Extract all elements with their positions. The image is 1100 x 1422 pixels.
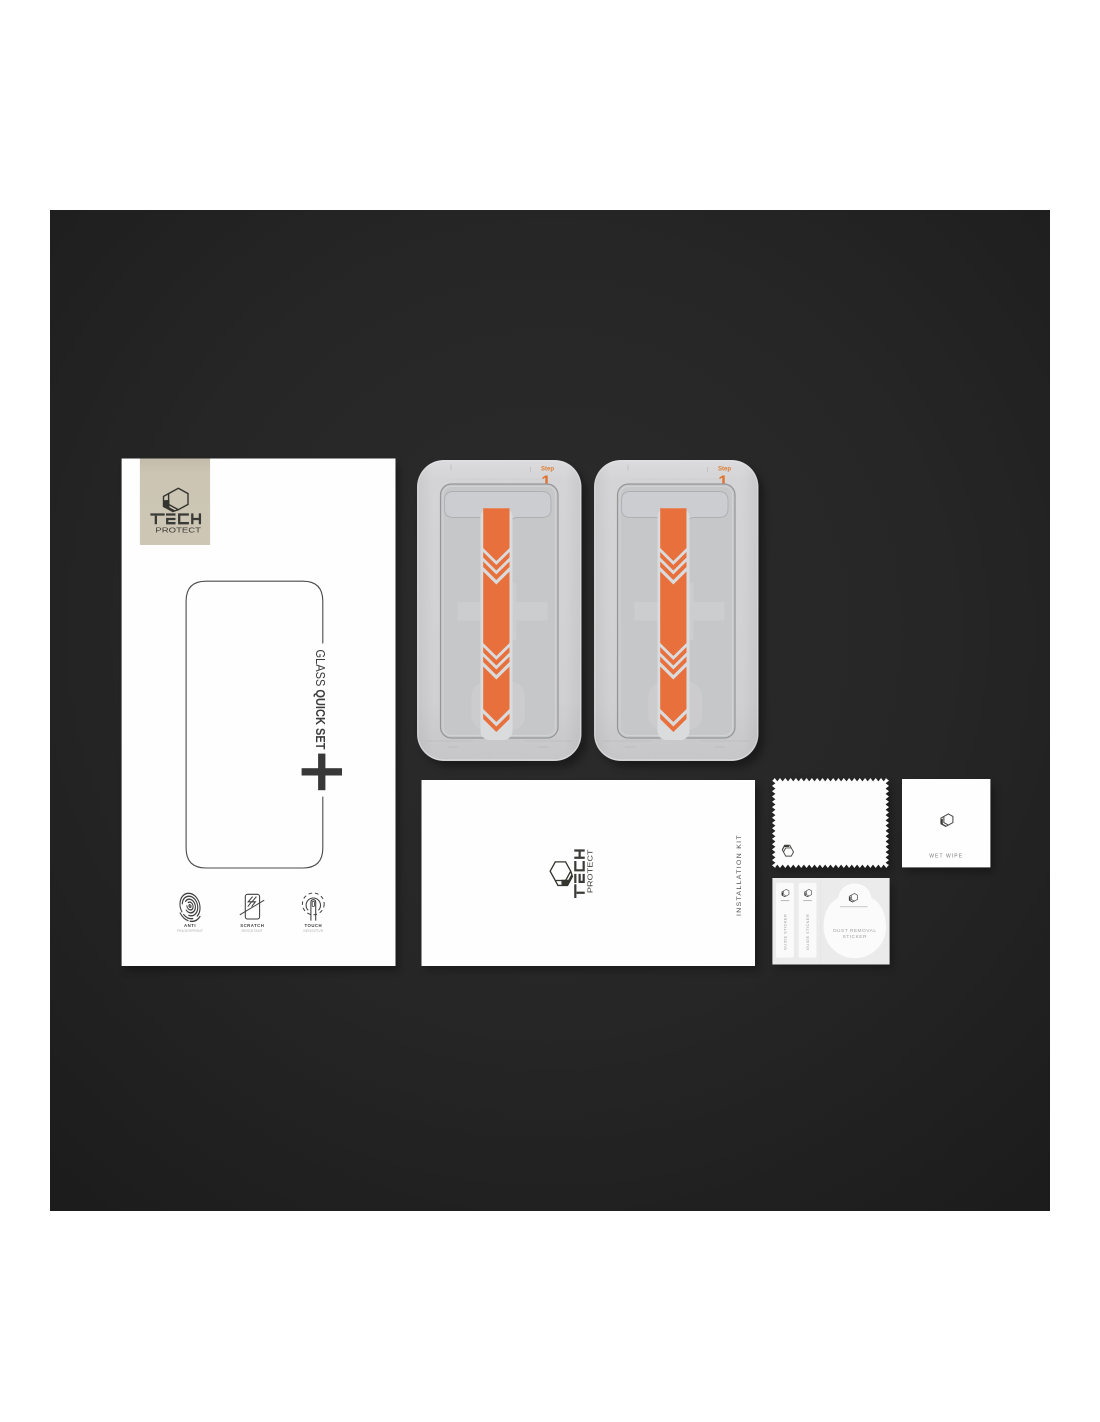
svg-text:FINGERPRINT: FINGERPRINT [177,928,204,933]
svg-text:GUIDE STICKER: GUIDE STICKER [782,914,787,950]
svg-text:RESISTANT: RESISTANT [242,928,264,933]
svg-text:GUIDE STICKER: GUIDE STICKER [805,914,810,950]
svg-text:DUST REMOVAL: DUST REMOVAL [833,928,876,934]
svg-text:SENSITIVE: SENSITIVE [303,928,324,933]
svg-text:STICKER: STICKER [843,934,867,940]
svg-text:INSTALLATION KIT: INSTALLATION KIT [737,834,743,916]
svg-text:GLASS QUICK SET: GLASS QUICK SET [313,650,328,750]
svg-text:WET WIPE: WET WIPE [929,854,963,860]
